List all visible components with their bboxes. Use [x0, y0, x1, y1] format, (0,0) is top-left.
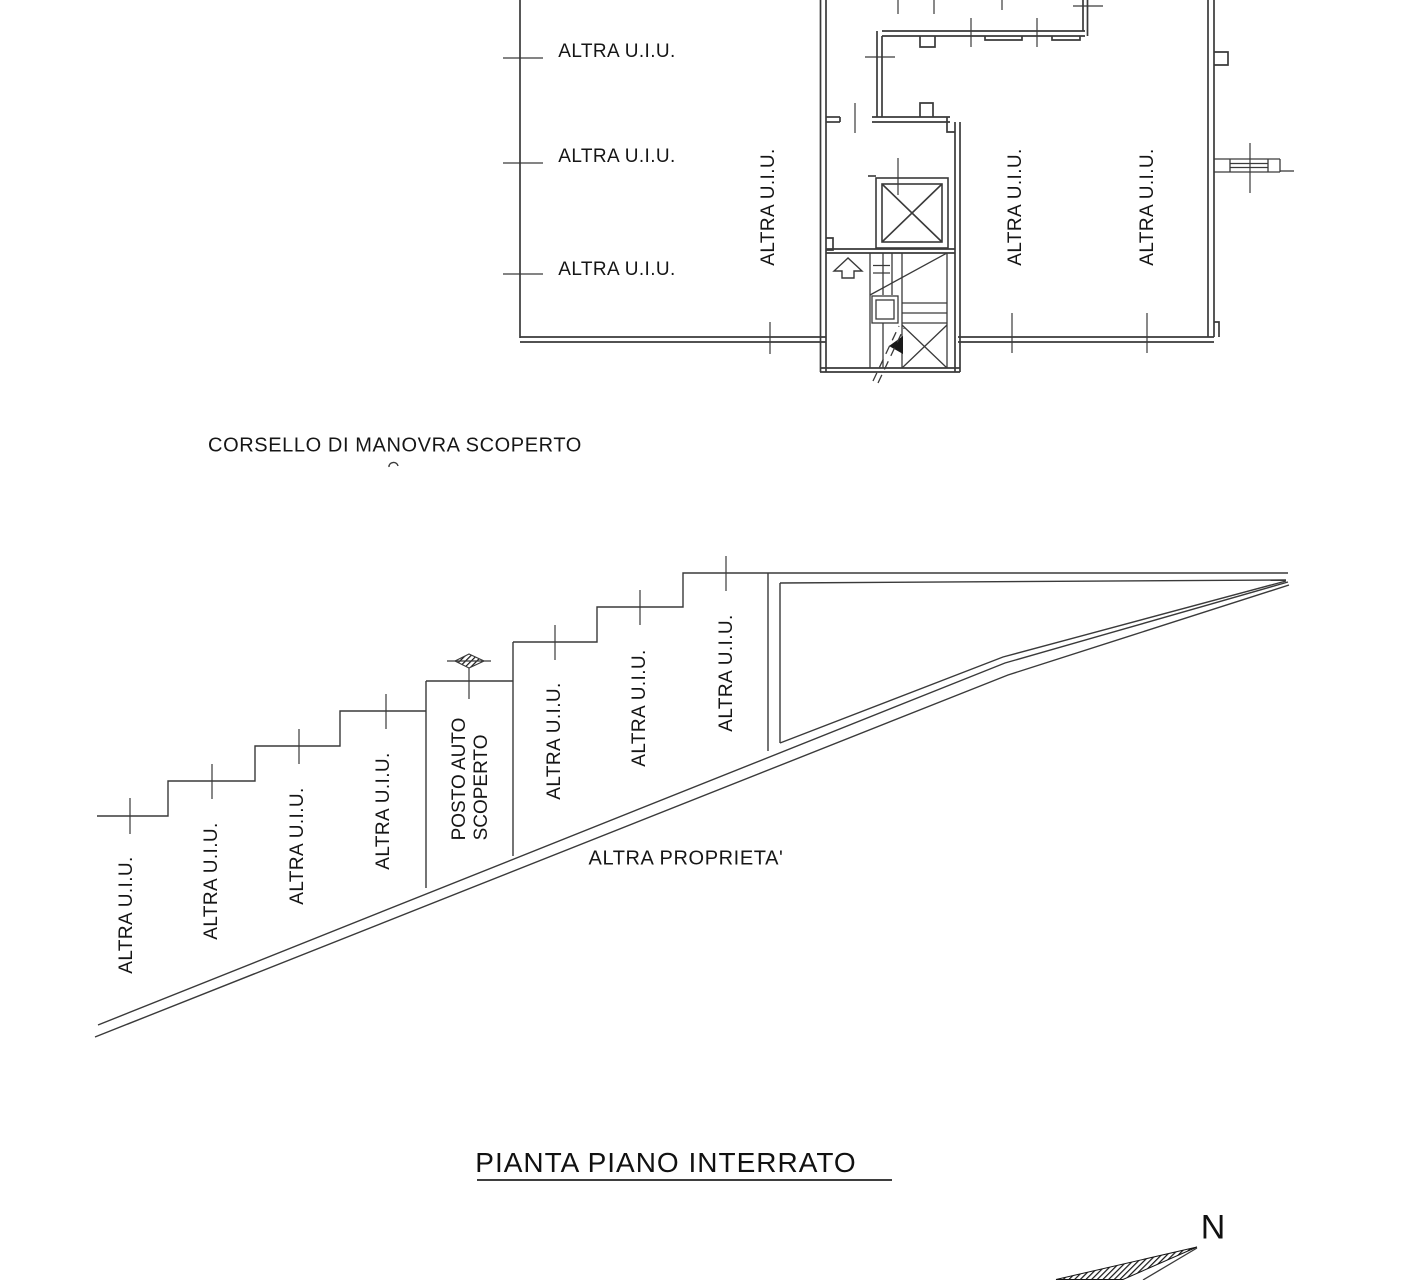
- elevator-shaft: [868, 176, 948, 248]
- stair-direction-arrow: [889, 336, 903, 354]
- parking-unit-label: ALTRA U.I.U.: [287, 787, 309, 904]
- corridor-label: CORSELLO DI MANOVRA SCOPERTO: [208, 435, 582, 458]
- posto-auto-label: POSTO AUTO SCOPERTO: [449, 718, 493, 841]
- unit-label-vertical: ALTRA U.I.U.: [1137, 148, 1159, 265]
- page-title: PIANTA PIANO INTERRATO: [475, 1147, 856, 1179]
- entrance-arrow-icon: [834, 258, 862, 278]
- parking-marker-icon: [447, 654, 491, 699]
- parking-unit-label: ALTRA U.I.U.: [201, 822, 223, 939]
- unit-label: ALTRA U.I.U.: [558, 259, 675, 281]
- north-needle-icon: [1056, 1247, 1197, 1280]
- right-wall-window: [1214, 159, 1294, 172]
- unit-label: ALTRA U.I.U.: [558, 41, 675, 63]
- stray-mark: [389, 462, 398, 467]
- boundary-label: ALTRA PROPRIETA': [589, 848, 784, 871]
- floor-plan-drawing: [0, 0, 1414, 1280]
- unit-label-vertical: ALTRA U.I.U.: [758, 148, 780, 265]
- parking-unit-label: ALTRA U.I.U.: [373, 752, 395, 869]
- unit-label-vertical: ALTRA U.I.U.: [1005, 148, 1027, 265]
- posto-auto-line1: POSTO AUTO: [449, 718, 471, 841]
- lower-plan-outline: [95, 573, 1289, 1037]
- posto-auto-line2: SCOPERTO: [471, 718, 493, 841]
- north-label: N: [1201, 1209, 1226, 1248]
- cadastral-plan-page: ALTRA U.I.U. ALTRA U.I.U. ALTRA U.I.U. A…: [0, 0, 1414, 1280]
- unit-label: ALTRA U.I.U.: [558, 146, 675, 168]
- staircase: [870, 253, 947, 383]
- parking-unit-label: ALTRA U.I.U.: [544, 682, 566, 799]
- parking-unit-label: ALTRA U.I.U.: [629, 649, 651, 766]
- parking-unit-label: ALTRA U.I.U.: [116, 856, 138, 973]
- parking-unit-label: ALTRA U.I.U.: [716, 614, 738, 731]
